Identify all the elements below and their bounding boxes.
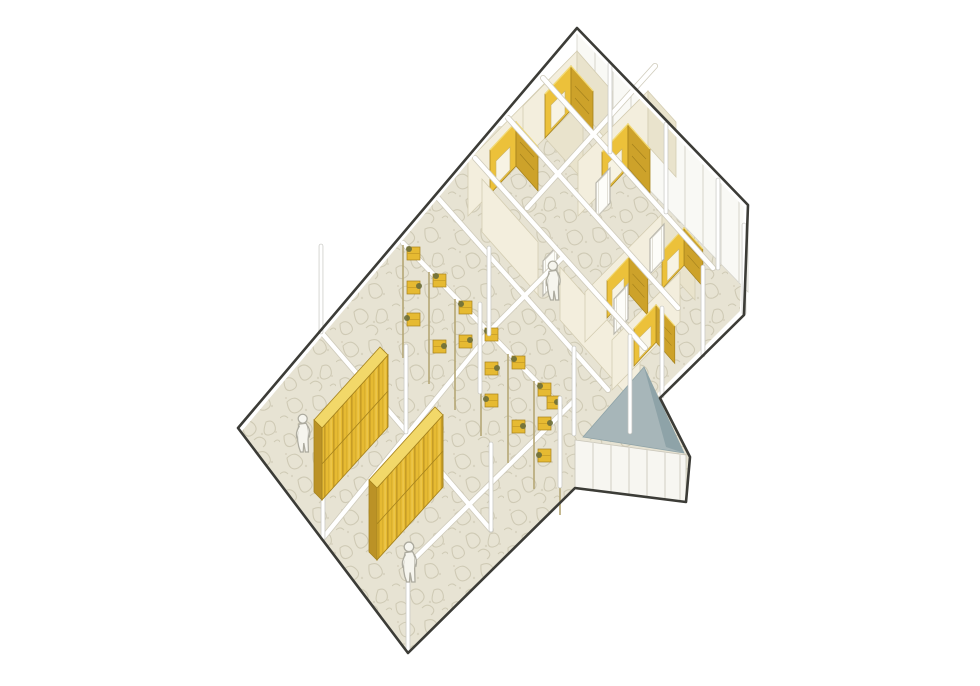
axonometric-drawing-canvas — [0, 0, 980, 686]
building-axonometric — [0, 0, 980, 686]
